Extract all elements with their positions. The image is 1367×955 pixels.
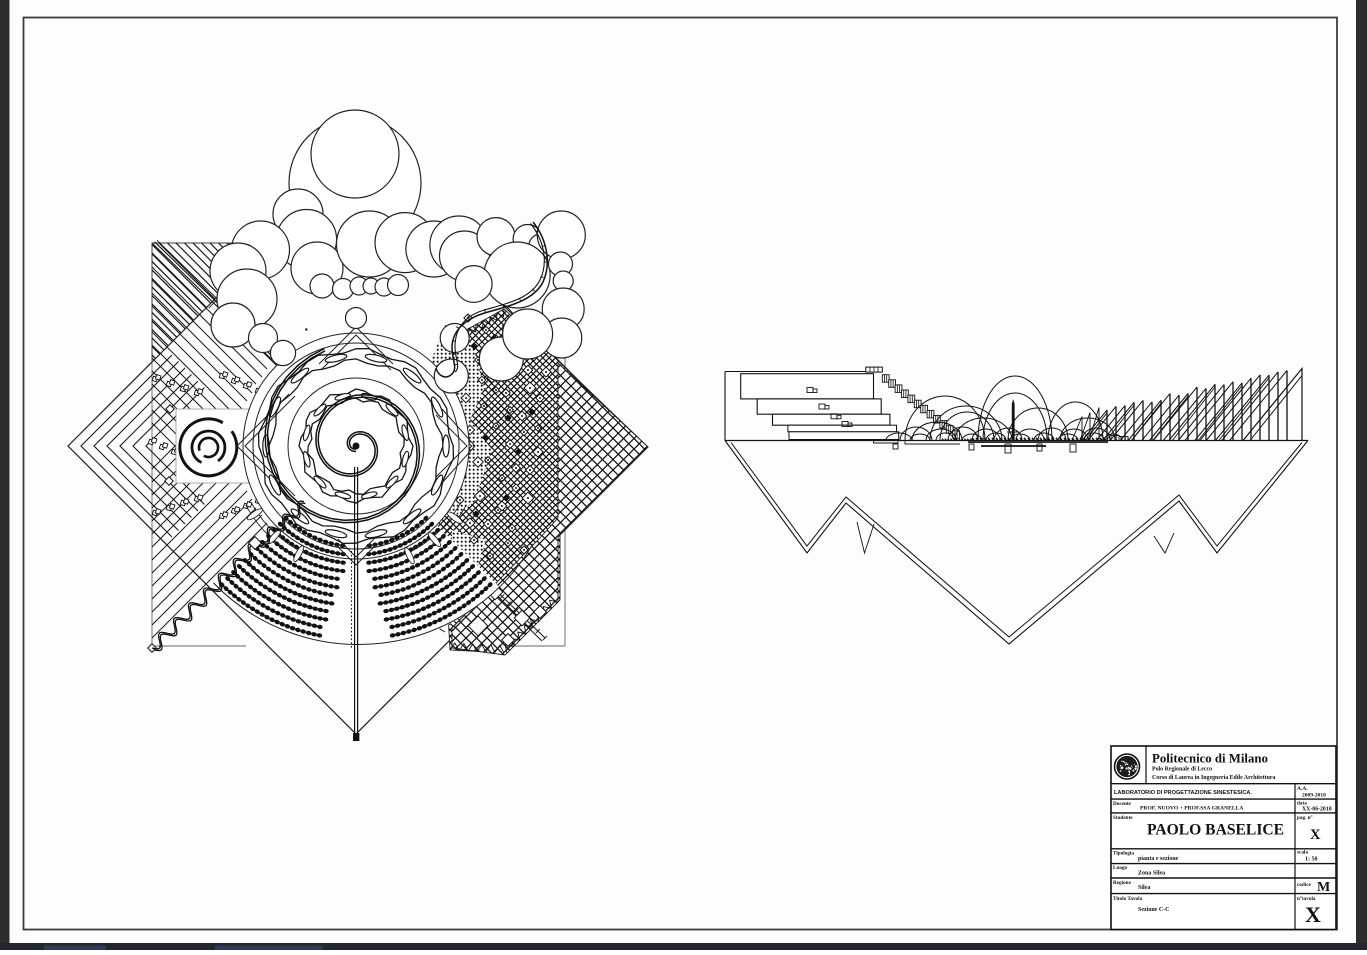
svg-text:X: X xyxy=(1310,827,1321,843)
svg-text:1: 50: 1: 50 xyxy=(1305,857,1318,863)
svg-text:X: X xyxy=(1305,902,1321,927)
svg-text:Politecnico di Milano: Politecnico di Milano xyxy=(1152,752,1268,766)
svg-text:Silea: Silea xyxy=(1138,885,1150,891)
svg-text:PROF. NUOVO + PROF.SSA GRANELL: PROF. NUOVO + PROF.SSA GRANELLA xyxy=(1140,806,1243,812)
svg-text:2009-2010: 2009-2010 xyxy=(1302,793,1326,799)
svg-text:A.A.: A.A. xyxy=(1297,786,1308,792)
svg-text:scala: scala xyxy=(1297,850,1308,856)
svg-text:pag. n°: pag. n° xyxy=(1297,814,1313,821)
svg-text:Studente: Studente xyxy=(1113,815,1133,821)
svg-text:codice: codice xyxy=(1297,882,1312,888)
svg-text:XX-06-2010: XX-06-2010 xyxy=(1302,807,1332,813)
svg-text:pianta e sezione: pianta e sezione xyxy=(1138,856,1179,862)
svg-text:Sezione C-C: Sezione C-C xyxy=(1138,907,1170,913)
svg-text:Polo Regionale di Lecco: Polo Regionale di Lecco xyxy=(1152,767,1212,773)
svg-text:Luogo: Luogo xyxy=(1113,865,1128,871)
svg-text:LABORATORIO DI PROGETTAZIONE S: LABORATORIO DI PROGETTAZIONE SINESTESICA… xyxy=(1114,790,1252,796)
svg-text:n°tavola: n°tavola xyxy=(1297,895,1316,902)
svg-text:PAOLO BASELICE: PAOLO BASELICE xyxy=(1147,822,1284,839)
svg-text:Regione: Regione xyxy=(1113,880,1132,886)
svg-text:Tipologia: Tipologia xyxy=(1113,851,1134,857)
svg-text:M: M xyxy=(1317,880,1330,895)
svg-text:Titolo Tavola: Titolo Tavola xyxy=(1113,896,1143,902)
svg-text:Docente: Docente xyxy=(1113,801,1132,807)
svg-text:Corso di Laurea in Ingegneria: Corso di Laurea in Ingegneria Edile Arch… xyxy=(1152,775,1276,781)
svg-text:Zona Silea: Zona Silea xyxy=(1138,871,1165,877)
